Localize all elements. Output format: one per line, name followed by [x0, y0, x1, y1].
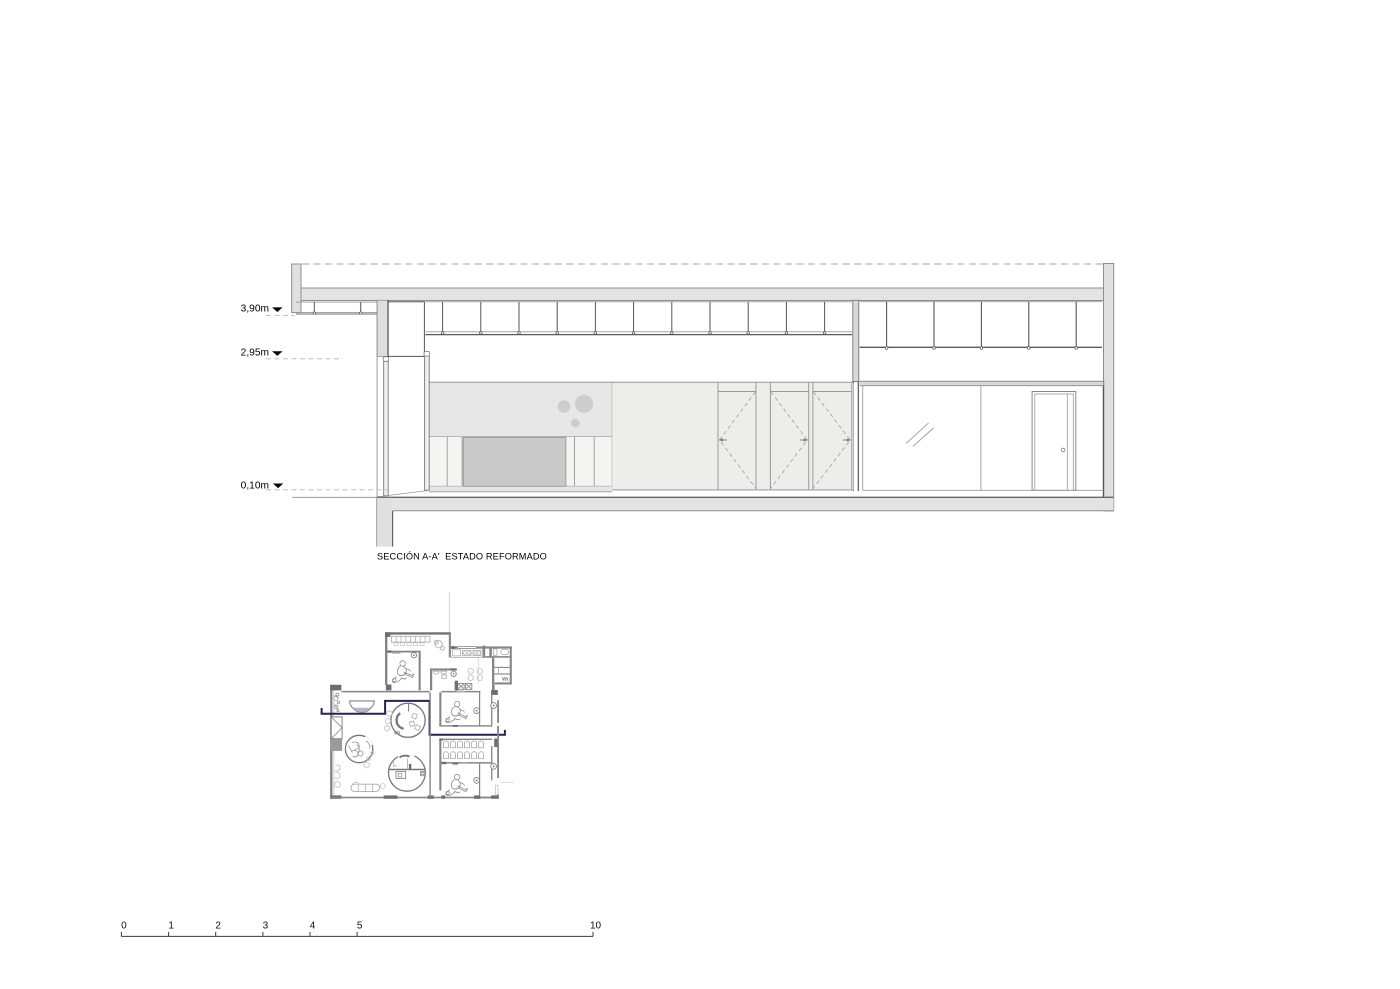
svg-text:1: 1	[168, 921, 174, 932]
svg-text:SECCIÓN A-A' ESTADO REFORMADO: SECCIÓN A-A' ESTADO REFORMADO	[377, 552, 547, 562]
svg-text:0: 0	[121, 921, 127, 932]
svg-text:2: 2	[215, 921, 221, 932]
svg-text:2,95m: 2,95m	[241, 348, 269, 359]
svg-text:3: 3	[263, 921, 269, 932]
svg-text:0,10m: 0,10m	[241, 481, 269, 492]
svg-text:3,90m: 3,90m	[241, 304, 269, 315]
svg-text:5: 5	[357, 921, 363, 932]
svg-text:10: 10	[590, 921, 602, 932]
svg-text:4: 4	[310, 921, 316, 932]
